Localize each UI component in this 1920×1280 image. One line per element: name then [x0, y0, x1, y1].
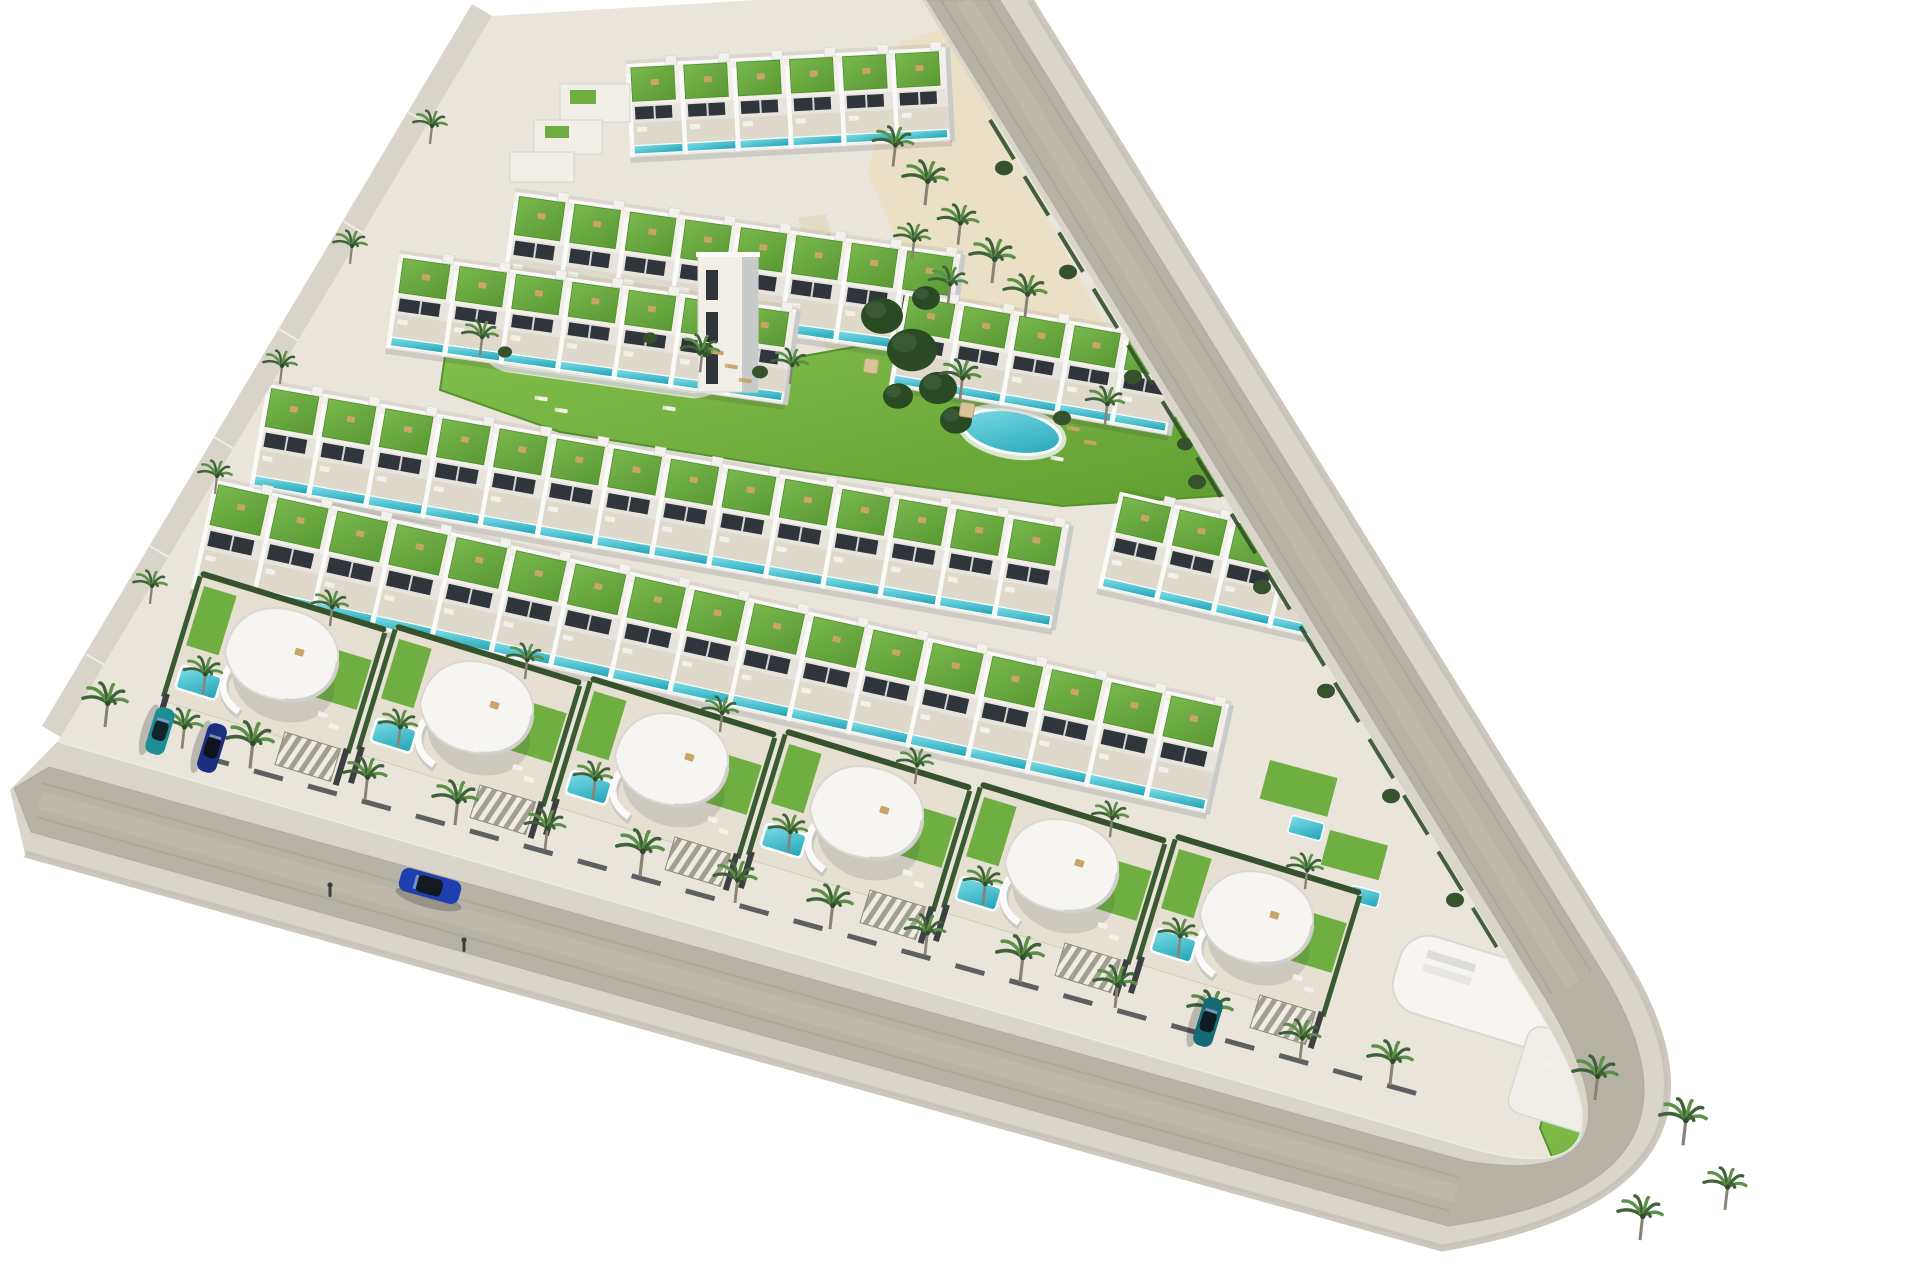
- palm-tree: [1618, 1196, 1662, 1240]
- stair-block: [555, 270, 567, 280]
- aerial-render-canvas: [0, 0, 1920, 1280]
- stair-block: [557, 192, 569, 202]
- parasol: [863, 358, 879, 374]
- parasol: [959, 402, 975, 418]
- stair-block: [940, 496, 952, 507]
- pedestrian-body: [463, 942, 466, 952]
- bush: [1059, 265, 1077, 279]
- stair-block: [997, 507, 1009, 518]
- palm-tree: [1660, 1099, 1706, 1145]
- stair-block: [1002, 303, 1014, 314]
- stair-block: [768, 466, 780, 477]
- lounger-back: [534, 396, 538, 400]
- bush: [1382, 789, 1400, 803]
- stair-block: [711, 456, 723, 467]
- roof-dining-set: [862, 68, 870, 74]
- stair-block: [1054, 517, 1066, 528]
- terrace-sofa: [902, 113, 912, 119]
- aerial-render: [0, 0, 1920, 1280]
- lounger-back: [724, 364, 728, 368]
- stair-block: [612, 278, 624, 288]
- terrace-lap-pool: [793, 135, 842, 146]
- bush: [1317, 684, 1335, 698]
- bush: [643, 332, 657, 343]
- stair-block: [425, 406, 437, 417]
- lounger-back: [738, 378, 742, 382]
- stepped-terrace: [510, 152, 574, 182]
- pedestrian-head: [327, 882, 332, 887]
- front-terrace: [895, 107, 949, 132]
- stair-block: [724, 215, 736, 225]
- terrace-sofa: [637, 127, 647, 133]
- terrace-lap-pool: [687, 140, 736, 151]
- tree-highlight: [892, 333, 917, 353]
- tree-highlight: [865, 301, 886, 318]
- pedestrian-head: [461, 937, 466, 942]
- stair-block: [499, 262, 511, 272]
- stair-block: [540, 426, 552, 437]
- front-terrace: [684, 118, 738, 143]
- roof-dining-set: [809, 70, 817, 76]
- bush: [1124, 370, 1142, 384]
- stair-block: [665, 55, 676, 65]
- palm-tree: [1704, 1168, 1746, 1210]
- bush: [498, 346, 512, 357]
- lounger-back: [710, 350, 714, 354]
- tower-cap: [696, 252, 760, 257]
- terrace-sofa: [796, 118, 806, 124]
- terrace-sofa: [690, 124, 700, 130]
- stair-block: [718, 53, 729, 63]
- townhouse-row-1: [625, 41, 955, 163]
- lounger-back: [662, 406, 666, 410]
- terrace-lap-pool: [740, 138, 789, 149]
- front-terrace: [789, 112, 843, 137]
- terrace-lap-pool: [634, 143, 683, 154]
- roof-dining-set: [478, 282, 487, 289]
- bush: [1053, 411, 1071, 425]
- stair-block: [824, 47, 835, 57]
- stair-block: [825, 476, 837, 487]
- front-terrace: [737, 115, 791, 140]
- bush: [752, 366, 768, 379]
- tree-highlight: [923, 375, 942, 390]
- stair-block: [882, 486, 894, 497]
- stair-block: [368, 396, 380, 407]
- roof-dining-set: [703, 236, 712, 243]
- stair-block: [1058, 313, 1070, 324]
- tower-window: [706, 354, 718, 384]
- bush: [1253, 580, 1271, 594]
- bush: [995, 161, 1013, 175]
- stair-block: [890, 239, 902, 249]
- roof-dining-set: [757, 73, 765, 79]
- stair-block: [930, 42, 941, 52]
- stair-block: [483, 416, 495, 427]
- terrace-sofa: [743, 121, 753, 127]
- stair-block: [781, 302, 793, 312]
- roof-dining-set: [648, 228, 657, 235]
- stair-block: [311, 386, 323, 397]
- pedestrian-body: [329, 887, 332, 897]
- roof-dining-set: [422, 274, 431, 281]
- roof-dining-set: [870, 260, 879, 267]
- stair-block: [835, 231, 847, 241]
- stair-block: [668, 286, 680, 296]
- stair-block: [668, 207, 680, 217]
- lounger-back: [554, 408, 558, 412]
- roof-dining-set: [647, 306, 656, 313]
- tower-window: [706, 270, 718, 300]
- roof-dining-set: [814, 252, 823, 259]
- front-terrace: [842, 109, 896, 134]
- bush: [1446, 893, 1464, 907]
- roof-dining-set: [651, 79, 659, 85]
- stair-block: [945, 246, 957, 256]
- parasol-canopy: [959, 402, 975, 418]
- stair-block: [613, 200, 625, 210]
- roof-dining-set: [704, 76, 712, 82]
- roof-dining-set: [760, 321, 769, 328]
- terrace-green: [570, 90, 596, 104]
- stair-block: [877, 44, 888, 54]
- roof-dining-set: [593, 221, 602, 228]
- roof-dining-set: [759, 244, 768, 251]
- stair-block: [654, 446, 666, 457]
- terrace-green: [545, 126, 569, 138]
- roof-dining-set: [535, 290, 544, 297]
- tree-highlight: [886, 386, 901, 398]
- tree-highlight: [915, 288, 929, 299]
- parasol-canopy: [863, 358, 879, 374]
- front-terrace: [631, 120, 685, 145]
- terrace-sofa: [849, 115, 859, 121]
- stair-block: [771, 50, 782, 60]
- stair-block: [779, 223, 791, 233]
- stair-block: [442, 254, 454, 264]
- tree-highlight: [943, 409, 959, 422]
- bush: [1188, 475, 1206, 489]
- stair-block: [597, 436, 609, 447]
- roof-dining-set: [591, 298, 600, 305]
- roof-dining-set: [537, 213, 546, 220]
- stair-tower: [696, 252, 760, 392]
- roof-dining-set: [915, 65, 923, 71]
